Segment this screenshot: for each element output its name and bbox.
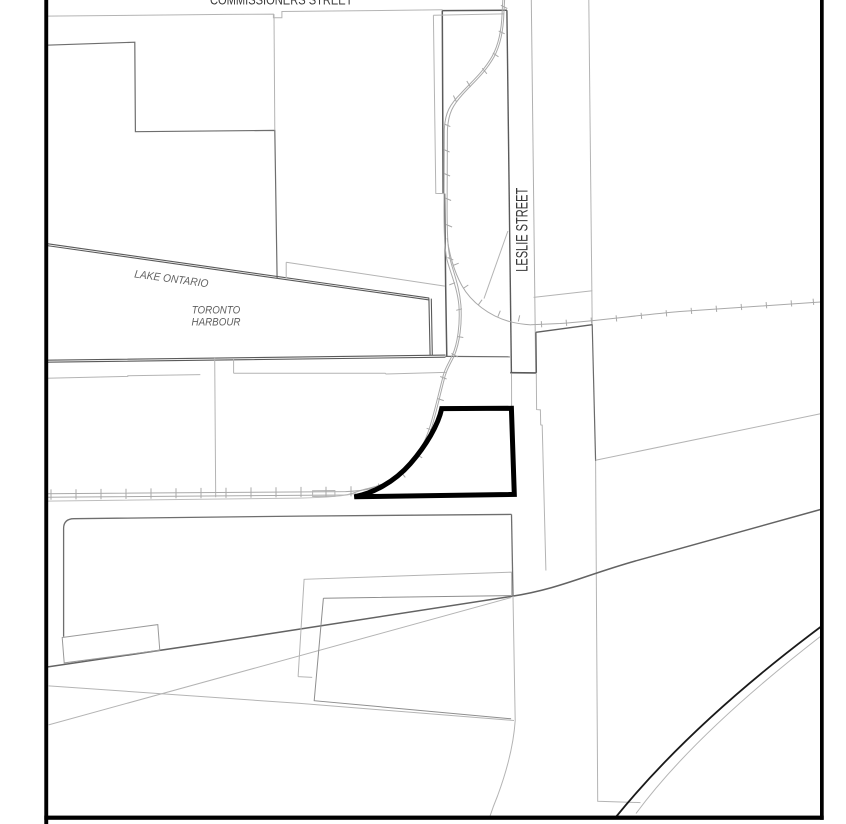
svg-text:TORONTO: TORONTO [192,304,241,316]
svg-text:HARBOUR: HARBOUR [192,317,241,329]
svg-text:COMMISSIONERS STREET: COMMISSIONERS STREET [210,0,353,7]
svg-text:LESLIE STREET: LESLIE STREET [513,188,531,272]
